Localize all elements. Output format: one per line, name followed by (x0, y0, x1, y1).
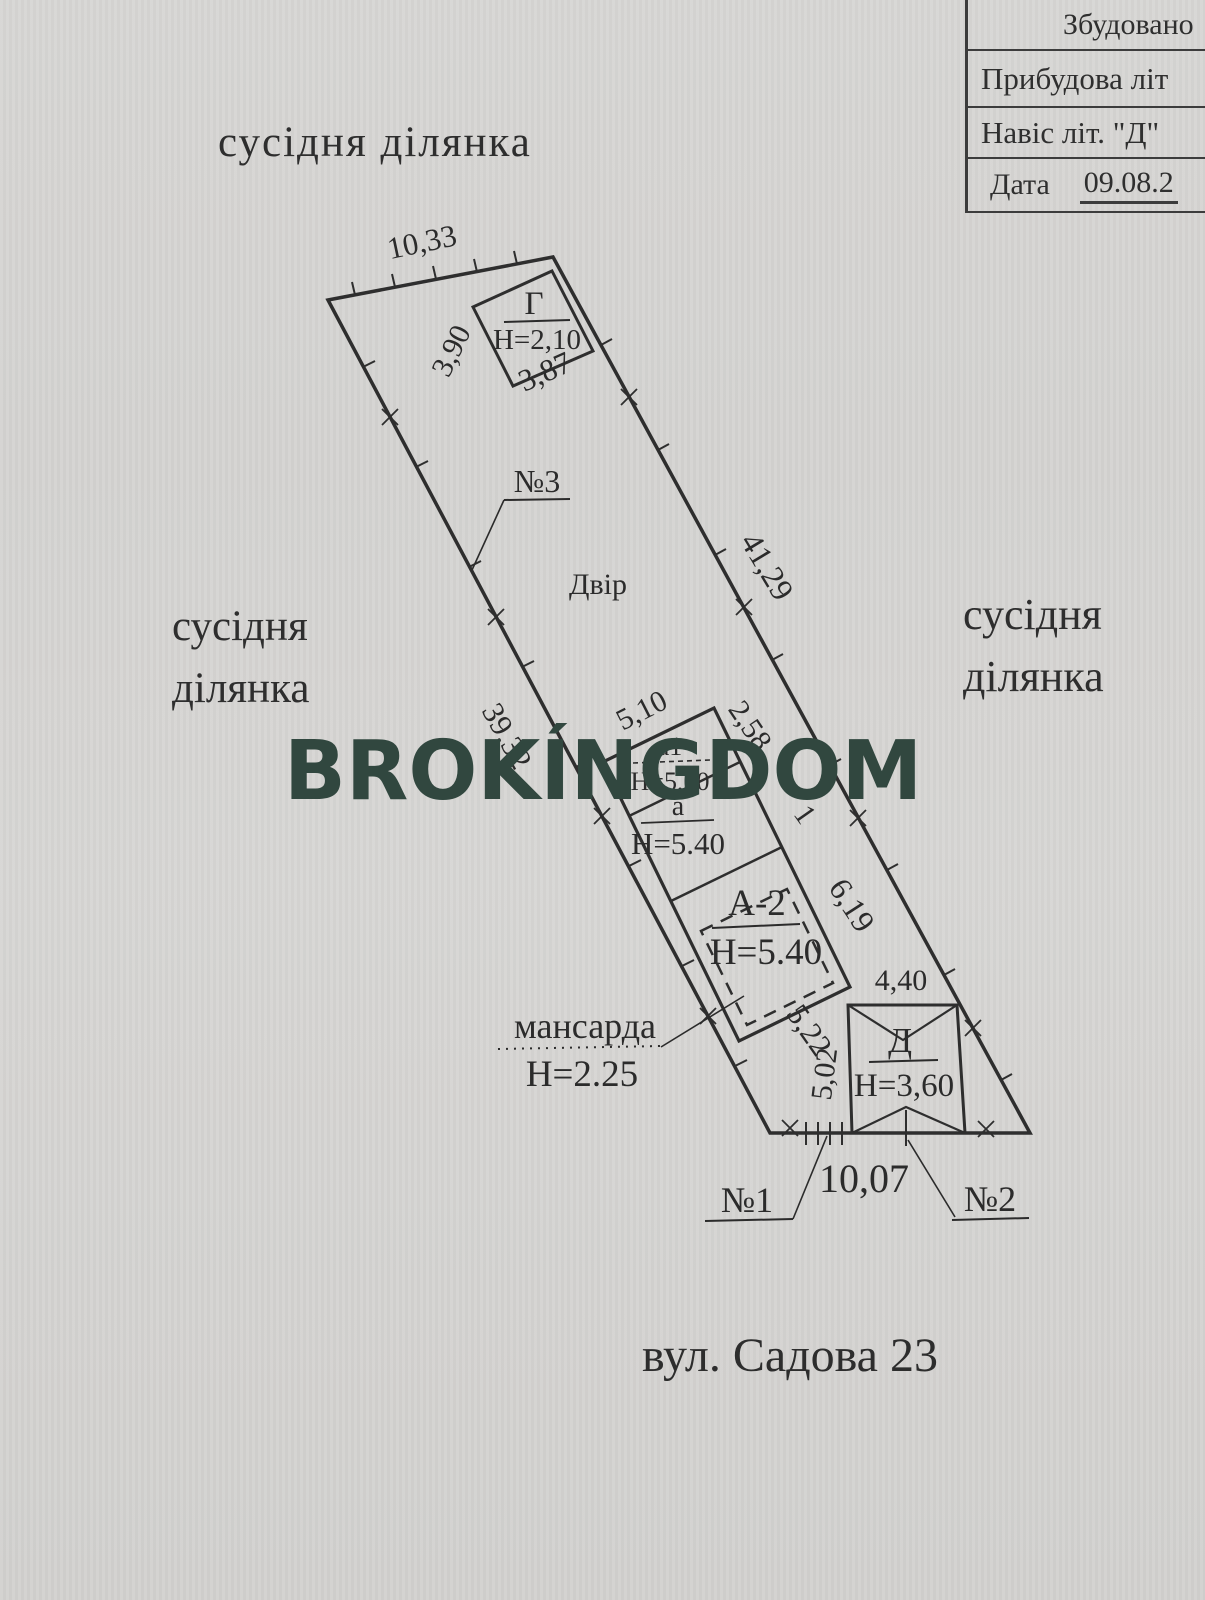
watermark: BROKÍNGDOM (284, 731, 922, 813)
info-table-row-built: Збудовано (968, 0, 1205, 51)
neighbor-right-line1: сусідня (963, 584, 1104, 646)
date-label: Дата (990, 168, 1050, 202)
survey-point-1-label: №1 (721, 1180, 773, 1220)
survey-point-3-label: №3 (514, 463, 561, 499)
canopy-d-bottom-chevron (852, 1107, 965, 1133)
survey-point-1-underline (705, 1219, 793, 1221)
neighbor-label-top: сусідня ділянка (218, 118, 532, 167)
survey-point-3-leader (472, 500, 504, 570)
house-a2-label: А-2 (728, 883, 786, 924)
dim-d-left: 5,02 (805, 1046, 844, 1102)
neighbor-label-left: сусідня ділянка (172, 596, 309, 720)
yard-label: Двір (569, 568, 627, 601)
info-table-row-canopy: Навіс літ. "Д" (968, 108, 1205, 159)
info-table-row-built-label: Збудовано (1063, 8, 1194, 42)
info-table-row-canopy-label: Навіс літ. "Д" (981, 115, 1159, 151)
survey-point-3-underline (504, 499, 570, 500)
date-value: 09.08.2 (1080, 166, 1178, 204)
canopy-d-underline (869, 1060, 938, 1062)
attic-label: мансарда (514, 1006, 656, 1046)
dim-right-edge: 41,29 (733, 526, 801, 606)
dim-top-edge: 10,33 (384, 217, 460, 266)
dim-g-left: 3,90 (425, 320, 478, 382)
neighbor-left-line2: ділянка (172, 658, 309, 720)
neighbor-right-line2: ділянка (963, 646, 1104, 708)
neighbor-label-right: сусідня ділянка (963, 584, 1104, 708)
info-table-row-annex: Прибудова літ (968, 51, 1205, 108)
house-a2-height: H=5.40 (710, 932, 822, 973)
info-table-row-annex-label: Прибудова літ (981, 61, 1168, 97)
dim-d-top: 4,40 (875, 964, 928, 997)
survey-point-2-label: №2 (964, 1179, 1016, 1219)
site-plan-page: 10,33 Г H=2,10 3,90 3,87 №3 Двір 41,29 3… (0, 0, 1205, 1600)
neighbor-left-line1: сусідня (172, 596, 309, 658)
info-table-row-date: Дата 09.08.2 (968, 159, 1205, 213)
attic-dotted-underline (498, 1046, 661, 1049)
building-g-label: Г (524, 286, 543, 322)
canopy-d-label: Д (888, 1021, 912, 1060)
dim-frontage: 10,07 (819, 1156, 909, 1201)
street-label: вул. Садова 23 (642, 1328, 938, 1383)
plot-boundary (328, 257, 1030, 1133)
attic-height: H=2.25 (526, 1054, 638, 1095)
canopy-d-height: H=3,60 (854, 1068, 954, 1104)
house-a2-underline (712, 924, 800, 928)
annex-a-height: H=5.40 (631, 826, 725, 861)
survey-point-2-leader (908, 1140, 955, 1217)
boundary-tick-marks (352, 251, 1012, 1145)
building-g-underline (504, 320, 570, 322)
info-table: Збудовано Прибудова літ Навіс літ. "Д" Д… (965, 0, 1205, 213)
building-g-height: H=2,10 (493, 324, 581, 356)
dim-house-right-lower: 6,19 (822, 872, 883, 939)
